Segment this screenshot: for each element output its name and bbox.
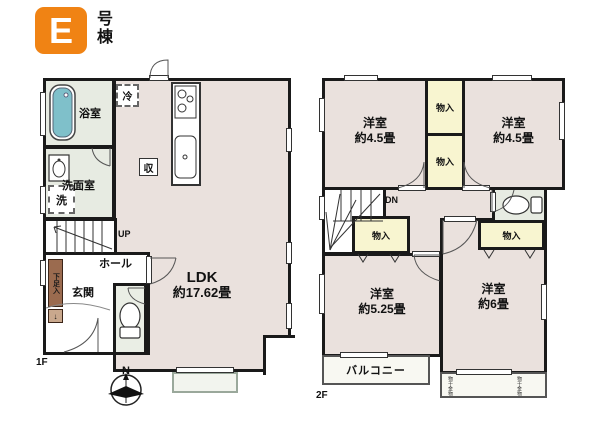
window-balcony-door: [176, 367, 234, 373]
bathtub-fixture: [49, 84, 77, 142]
closet-top-1: 物入: [425, 78, 465, 136]
shoe-cabinet-arrow: ↓: [54, 312, 58, 321]
storage-label: 収: [144, 160, 154, 175]
building-badge: E: [35, 7, 87, 54]
closet-mid-left: 物入: [352, 216, 410, 254]
room-size: 約5.25畳: [322, 302, 442, 317]
window: [286, 303, 292, 329]
closet-label: 物入: [502, 229, 520, 242]
washer-label: 洗: [56, 192, 67, 208]
building-badge-suffix: 号棟: [90, 10, 114, 46]
door-gap: [462, 185, 490, 191]
balcony-note: 物干金物: [516, 376, 523, 396]
washroom-label: 洗面室: [62, 177, 95, 193]
balcony-left: バルコニー: [322, 355, 430, 385]
closet-label: 物入: [436, 155, 454, 168]
stove-sink-fixture: [173, 84, 199, 184]
kitchen-counter: [171, 82, 201, 186]
storage-box-1f: 収: [139, 158, 158, 176]
room-label-west525: 洋室 約5.25畳: [322, 287, 442, 317]
floor1-label: 1F: [36, 357, 48, 368]
room-toilet-2f: [492, 187, 547, 223]
room-name: 洋室: [322, 116, 428, 131]
closet-label: 物入: [436, 101, 454, 114]
room-name: 洋室: [322, 287, 442, 302]
floor-plan-sheet: E 号棟 洗 下足入 ↓: [0, 0, 600, 440]
window: [40, 260, 46, 286]
window: [286, 128, 292, 152]
closet-mid-right: 物入: [478, 220, 545, 250]
room-label-west6: 洋室 約6畳: [440, 282, 547, 312]
shoe-cabinet-counter: ↓: [48, 309, 63, 323]
balcony-label: バルコニー: [346, 362, 406, 378]
hall-label: ホール: [99, 255, 132, 271]
door-gap: [412, 251, 440, 257]
room-name: 洋室: [462, 116, 565, 131]
door-gap: [398, 185, 426, 191]
ldk-label: LDK 約17.62畳: [113, 270, 291, 300]
window-balcony-door: [340, 352, 388, 358]
ldk-porch-step: [172, 372, 238, 393]
stairs-up-label: UP: [118, 229, 131, 239]
door-gap: [490, 192, 496, 212]
room-name: 洋室: [440, 282, 547, 297]
toilet-fixture-2f: [497, 190, 546, 220]
window: [286, 242, 292, 264]
window: [319, 196, 325, 220]
room-label-west45-right: 洋室 約4.5畳: [462, 116, 565, 146]
shoe-cabinet-label: 下足入: [51, 273, 61, 294]
compass: [108, 373, 144, 405]
ldk-corner-notch: [263, 335, 295, 375]
window: [492, 75, 532, 81]
closet-label: 物入: [372, 229, 390, 242]
window-balcony-door: [456, 369, 512, 375]
closet-top-2: 物入: [425, 133, 465, 190]
window: [40, 186, 46, 214]
ldk-size: 約17.62畳: [113, 285, 291, 300]
back-door-gap: [149, 75, 169, 81]
fridge-space: 冷: [116, 84, 139, 107]
shoe-cabinet: 下足入: [48, 259, 63, 307]
stairs-1f: [43, 218, 117, 256]
floor2-label: 2F: [316, 390, 328, 401]
room-size: 約6畳: [440, 297, 547, 312]
fridge-label: 冷: [123, 88, 133, 103]
balcony-note: 物干金物: [447, 376, 454, 396]
stairs-down-label: DN: [385, 195, 398, 205]
window: [344, 75, 378, 81]
building-letter: E: [49, 10, 73, 52]
room-size: 約4.5畳: [322, 131, 428, 146]
bathroom-label: 浴室: [79, 105, 101, 121]
ldk-name: LDK: [113, 270, 291, 285]
entrance-label: 玄関: [72, 284, 94, 300]
room-size: 約4.5畳: [462, 131, 565, 146]
door-gap: [444, 216, 476, 222]
toilet-fixture-1f: [116, 300, 144, 362]
room-label-west45-left: 洋室 約4.5畳: [322, 116, 428, 146]
balcony-right: 物干金物 物干金物: [440, 372, 547, 398]
window: [40, 92, 46, 136]
